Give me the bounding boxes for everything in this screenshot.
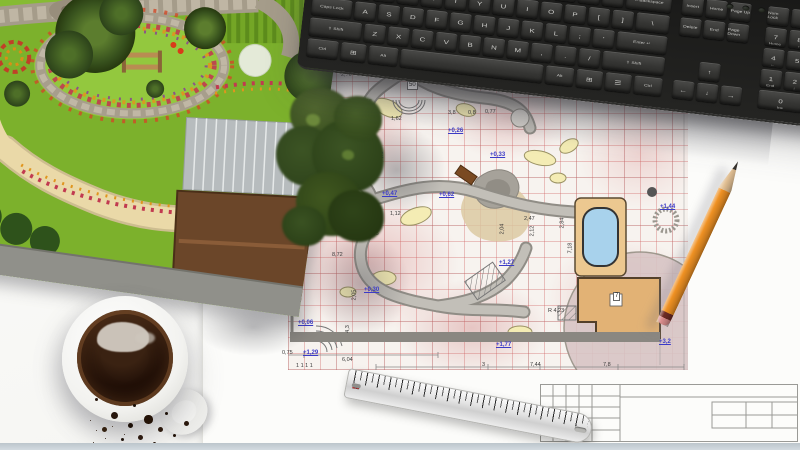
key-g: G <box>449 12 472 32</box>
key-0: 0 <box>554 0 577 2</box>
coffee-cup <box>62 296 188 422</box>
plan-annotation: 2,47 <box>524 216 535 222</box>
key-t: T <box>444 0 467 11</box>
plan-annotation: +1,44 <box>660 204 675 210</box>
key-←: ← <box>672 80 695 100</box>
key-↑: ↑ <box>698 62 721 82</box>
key-x: X <box>387 26 410 46</box>
key-y: Y <box>468 0 491 14</box>
plan-annotation: 7,44 <box>530 362 541 368</box>
key-=: = <box>602 0 625 8</box>
key-w: W <box>373 0 396 3</box>
plan-annotation: 0,77 <box>485 109 496 115</box>
plan-annotation: 2,04 <box>499 224 505 235</box>
key-⇧-shift: ⇧ Shift <box>308 17 362 41</box>
key-n: N <box>483 37 506 57</box>
key-m: M <box>506 40 529 60</box>
plan-annotation: +1,27 <box>499 260 514 266</box>
coffee-reflection-2 <box>135 332 155 344</box>
plan-annotation: 2,84 <box>559 218 565 229</box>
keyboard-numpad-row: 0Ins.Del <box>757 90 800 119</box>
key-o: O <box>540 1 563 21</box>
key-k: K <box>521 20 544 40</box>
key-num-lock: Num Lock <box>767 6 790 26</box>
keyboard-arrow-row: ←↓→ <box>672 80 743 106</box>
plan-annotation: 2,12 <box>529 226 535 237</box>
key-1: 1End <box>760 69 783 89</box>
key-⊞: ⊞ <box>339 42 367 63</box>
key-\: \ <box>635 12 670 34</box>
key-r: R <box>421 0 444 8</box>
key-j: J <box>497 18 520 38</box>
key-☰: ☰ <box>604 72 632 93</box>
plan-annotation: 0,8 <box>468 110 476 116</box>
key--: - <box>578 0 601 5</box>
key-p: P <box>564 4 587 24</box>
key-]: ] <box>611 10 634 30</box>
key-alt: Alt <box>368 45 398 66</box>
coffee-specks <box>90 420 91 421</box>
plan-annotation: 8,72 <box>332 252 343 258</box>
key-ctrl: Ctrl <box>306 38 338 60</box>
plan-annotation: +1,29 <box>303 350 318 356</box>
key-caps-lock: Caps Lock <box>311 0 353 19</box>
plan-annotation: +3,2 <box>659 339 671 345</box>
plan-annotation: R 4,23 <box>548 308 564 314</box>
coffee-crumbs <box>95 398 98 401</box>
key-v: V <box>435 32 458 52</box>
plan-annotation: 6,04 <box>342 357 353 363</box>
key-4: 4← <box>762 48 785 68</box>
plan-annotation: +1,77 <box>496 342 511 348</box>
cup-body <box>62 296 188 422</box>
key-i: I <box>516 0 539 19</box>
key-e: E <box>397 0 420 6</box>
keyboard-led <box>758 7 766 13</box>
plan-annotation: 4,3 <box>345 325 351 333</box>
plan-annotation: +0,62 <box>439 192 454 198</box>
key-/: / <box>791 9 800 29</box>
coffee-surface <box>77 310 173 406</box>
key-enter-↵: Enter ↵ <box>616 31 668 55</box>
key-8: 8↑ <box>788 30 800 50</box>
keyboard-arrow-up: ↑ <box>698 62 721 82</box>
key-↓: ↓ <box>696 83 719 103</box>
key-delete: Delete <box>679 17 702 37</box>
key-page-down: Page Down <box>727 23 750 43</box>
plan-annotation: +0,33 <box>490 152 505 158</box>
key-a: A <box>354 1 377 21</box>
plan-annotation: +0,30 <box>364 287 379 293</box>
key-s: S <box>378 4 401 24</box>
key-l: L <box>545 23 568 43</box>
plan-annotation: 3 <box>482 362 485 368</box>
plan-annotation: 7 <box>613 292 620 301</box>
photo-scene: +0,02+0,26+0,33+0,47+0,62+0,30+0,06+1,27… <box>0 0 800 450</box>
key-': ' <box>592 28 615 48</box>
plan-annotation: 2,05 <box>351 290 357 301</box>
plan-annotation: 3,8 <box>448 110 456 116</box>
key-.: . <box>554 45 577 65</box>
key-,: , <box>530 43 553 63</box>
overlay-tree <box>276 86 398 248</box>
plan-annotation: +0,06 <box>298 320 313 326</box>
key-ctrl: Ctrl <box>633 75 663 96</box>
key-[: [ <box>587 7 610 27</box>
plan-annotation: 7,18 <box>567 243 573 254</box>
key-0: 0Ins <box>757 90 800 113</box>
key-z: Z <box>363 24 386 44</box>
key-2: 2↓ <box>783 71 800 91</box>
key-home: Home <box>705 0 728 20</box>
key-/: / <box>578 48 601 68</box>
plan-annotation: +0,26 <box>448 128 463 134</box>
key-7: 7Home <box>764 27 787 47</box>
key-c: C <box>411 29 434 49</box>
key-u: U <box>492 0 515 16</box>
plan-annotation: 50 <box>407 81 418 90</box>
key-h: H <box>473 15 496 35</box>
desk-edge <box>0 443 800 450</box>
key-→: → <box>719 85 742 105</box>
plan-annotation: 1 1 1 1 <box>296 363 313 369</box>
key-b: B <box>459 34 482 54</box>
key-⊞: ⊞ <box>576 69 604 90</box>
plan-annotation: 7,8 <box>603 362 611 368</box>
key-f: F <box>425 9 448 29</box>
key-5: 5 <box>786 51 800 71</box>
plan-annotation: 0,75 <box>282 350 293 356</box>
key-d: D <box>401 7 424 27</box>
key-end: End <box>703 20 726 40</box>
key-;: ; <box>568 26 591 46</box>
key-alt: Alt <box>545 65 575 86</box>
key-insert: Insert <box>681 0 704 17</box>
